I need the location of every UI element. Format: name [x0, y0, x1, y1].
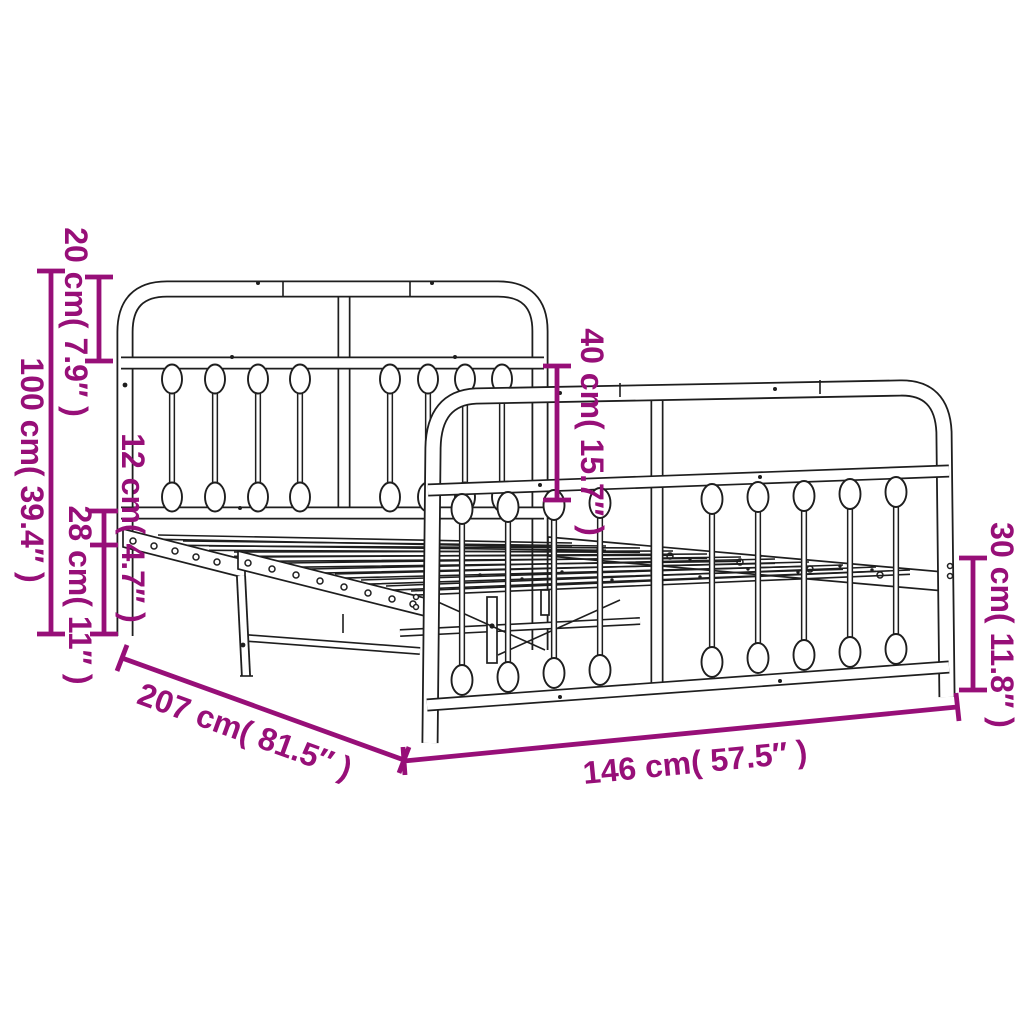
product-dimension-diagram: 100 cm( 39.4″ ) 20 cm( 7.9″ ) 12 cm( 4.7…	[0, 0, 1024, 1024]
dim-label-headboard-top: 20 cm( 7.9″ )	[58, 227, 94, 417]
headboard	[121, 281, 544, 650]
dim-label-rail-gap: 12 cm( 4.7″ )	[115, 433, 151, 623]
dim-label-footboard-top: 40 cm( 15.7″ )	[574, 328, 610, 535]
dim-label-headboard-height: 100 cm( 39.4″ )	[14, 357, 50, 582]
bed-frame-drawing: 100 cm( 39.4″ ) 20 cm( 7.9″ ) 12 cm( 4.7…	[0, 0, 1024, 1024]
dim-label-underbed-clearance: 28 cm( 11″ )	[62, 506, 98, 685]
dim-label-footboard-leg: 30 cm( 11.8″ )	[984, 522, 1020, 728]
